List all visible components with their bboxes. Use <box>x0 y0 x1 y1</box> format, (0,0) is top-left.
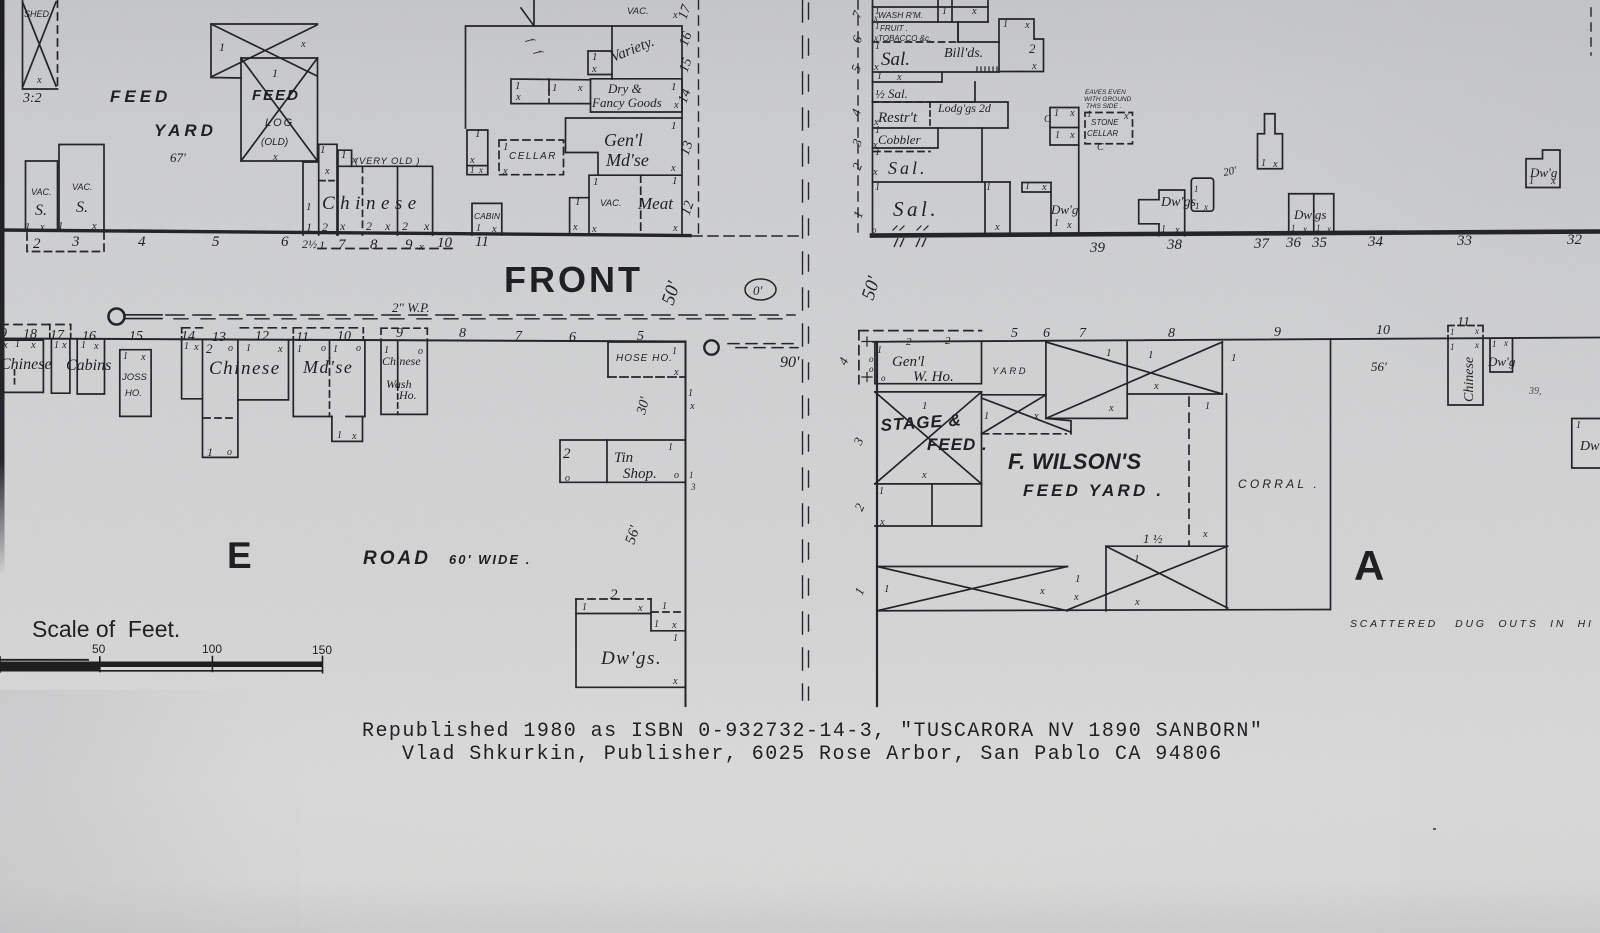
svg-text:x: x <box>515 92 521 103</box>
svg-text:1: 1 <box>688 388 693 399</box>
svg-text:37: 37 <box>1253 236 1271 252</box>
svg-text:SHED: SHED <box>24 9 50 19</box>
svg-text:x: x <box>2 340 8 351</box>
svg-text:HO.: HO. <box>125 388 142 399</box>
svg-text:1: 1 <box>1134 553 1140 565</box>
svg-text:1: 1 <box>672 346 677 357</box>
svg-text:1: 1 <box>470 165 475 175</box>
svg-text:1: 1 <box>15 339 20 350</box>
svg-text:HOSE HO.: HOSE HO. <box>616 353 673 364</box>
svg-text:1: 1 <box>942 6 947 17</box>
svg-text:x: x <box>1550 176 1556 187</box>
svg-text:1: 1 <box>219 40 225 54</box>
svg-text:o: o <box>872 225 877 235</box>
svg-text:1: 1 <box>662 601 667 612</box>
svg-text:x: x <box>93 341 99 352</box>
svg-text:SCATTERED DUG OUTS IN HI: SCATTERED DUG OUTS IN HI <box>1350 618 1594 630</box>
svg-text:ROAD: ROAD <box>363 548 431 569</box>
svg-text:x: x <box>689 401 695 412</box>
svg-text:x: x <box>30 340 36 351</box>
svg-text:1: 1 <box>672 175 678 187</box>
svg-text:1: 1 <box>552 82 558 94</box>
svg-text:FEED .: FEED . <box>927 435 988 454</box>
svg-text:Chinese: Chinese <box>209 358 281 379</box>
svg-text:5: 5 <box>212 234 220 250</box>
svg-text:1: 1 <box>877 71 882 82</box>
svg-text:1: 1 <box>476 223 481 234</box>
svg-text:9: 9 <box>1274 325 1281 340</box>
svg-text:9: 9 <box>0 326 7 341</box>
svg-text:1: 1 <box>1492 339 1497 349</box>
svg-text:38: 38 <box>1166 237 1183 253</box>
svg-text:A: A <box>1354 542 1384 589</box>
svg-text:Dw'g: Dw'g <box>1050 202 1079 217</box>
svg-text:1: 1 <box>207 445 213 459</box>
svg-text:1: 1 <box>246 343 251 354</box>
svg-text:1: 1 <box>1075 573 1081 585</box>
svg-text:Gen'l: Gen'l <box>604 130 643 150</box>
svg-text:x: x <box>272 152 278 163</box>
svg-text:x: x <box>672 676 678 687</box>
svg-text:S.: S. <box>35 202 47 219</box>
svg-text:8: 8 <box>370 237 378 253</box>
svg-text:2½: 2½ <box>302 237 317 251</box>
svg-text:TOBACCO &c.: TOBACCO &c. <box>878 34 931 43</box>
svg-text:x: x <box>872 167 878 178</box>
svg-text:x: x <box>670 163 676 174</box>
svg-text:x: x <box>1024 20 1030 31</box>
svg-text:1: 1 <box>984 411 989 422</box>
svg-text:1: 1 <box>671 120 677 132</box>
svg-text:1: 1 <box>1161 224 1166 235</box>
svg-text:1: 1 <box>875 41 880 52</box>
svg-text:x: x <box>1039 586 1045 597</box>
svg-text:o: o <box>418 346 423 357</box>
svg-text:FEED YARD .: FEED YARD . <box>1023 481 1164 500</box>
svg-text:34: 34 <box>1367 234 1384 250</box>
svg-text:x: x <box>1272 159 1278 170</box>
svg-text:F. WILSON'S: F. WILSON'S <box>1008 449 1141 474</box>
svg-text:6: 6 <box>1043 326 1050 341</box>
svg-text:Tin: Tin <box>614 450 633 466</box>
svg-text:60' WIDE .: 60' WIDE . <box>449 552 531 567</box>
svg-text:3: 3 <box>71 234 80 250</box>
svg-text:13: 13 <box>212 330 226 345</box>
svg-text:x: x <box>61 340 67 351</box>
svg-text:o: o <box>356 343 361 354</box>
svg-text:1: 1 <box>875 147 880 158</box>
svg-text:x: x <box>637 603 643 614</box>
svg-text:x: x <box>572 222 578 233</box>
svg-text:Meat: Meat <box>637 194 674 213</box>
svg-text:x: x <box>1033 411 1039 422</box>
svg-text:1: 1 <box>1003 19 1008 30</box>
svg-text:STONE: STONE <box>1091 118 1119 127</box>
svg-text:x: x <box>140 352 146 363</box>
svg-text:11: 11 <box>296 330 309 345</box>
svg-text:FRONT: FRONT <box>504 259 643 300</box>
svg-text:1: 1 <box>503 141 509 153</box>
svg-text:1: 1 <box>475 128 481 140</box>
svg-text:VAC.: VAC. <box>627 6 649 17</box>
svg-text:x: x <box>36 75 42 86</box>
svg-text:39,: 39, <box>1528 386 1542 397</box>
svg-text:6: 6 <box>281 234 289 250</box>
svg-text:15: 15 <box>129 329 143 344</box>
svg-text:CELLAR: CELLAR <box>509 151 557 162</box>
svg-text:11: 11 <box>475 234 489 250</box>
svg-text:o: o <box>674 470 679 481</box>
svg-text:1: 1 <box>582 602 587 613</box>
svg-text:x: x <box>1134 597 1140 608</box>
svg-text:x: x <box>193 342 199 353</box>
svg-text:x: x <box>1108 403 1114 414</box>
svg-text:CELLAR: CELLAR <box>1087 129 1118 138</box>
svg-text:1: 1 <box>1106 347 1112 359</box>
svg-text:1: 1 <box>1450 327 1455 337</box>
svg-text:Bill'ds.: Bill'ds. <box>944 46 983 61</box>
svg-text:2: 2 <box>906 336 912 348</box>
svg-text:10: 10 <box>1376 323 1390 338</box>
svg-text:x: x <box>921 470 927 481</box>
svg-text:7: 7 <box>515 329 523 344</box>
svg-text:8: 8 <box>459 326 466 341</box>
svg-text:x: x <box>672 10 678 21</box>
svg-text:x: x <box>384 219 391 233</box>
svg-text:x: x <box>1474 340 1479 350</box>
svg-text:1: 1 <box>875 21 880 31</box>
svg-text:Sal.: Sal. <box>888 158 928 178</box>
svg-text:o: o <box>881 373 886 383</box>
svg-text:C: C <box>1044 114 1051 125</box>
svg-text:36: 36 <box>1285 235 1302 251</box>
svg-text:1: 1 <box>879 486 884 497</box>
svg-text:35: 35 <box>1311 235 1328 251</box>
svg-text:1: 1 <box>575 196 581 208</box>
svg-text:1: 1 <box>1261 158 1266 169</box>
svg-text:100: 100 <box>202 642 222 656</box>
svg-text:Chinese: Chinese <box>0 356 52 373</box>
svg-text:1: 1 <box>54 340 59 351</box>
svg-text:2: 2 <box>945 335 951 347</box>
svg-text:1: 1 <box>272 66 278 80</box>
svg-text:x: x <box>277 344 283 355</box>
svg-text:x: x <box>1041 182 1047 193</box>
svg-text:2" W.P.: 2" W.P. <box>392 300 430 315</box>
svg-text:1: 1 <box>1054 218 1059 229</box>
svg-text:Scale of Feet.: Scale of Feet. <box>32 616 180 642</box>
svg-text:50: 50 <box>92 642 106 656</box>
svg-text:YARD: YARD <box>154 121 217 140</box>
svg-text:x: x <box>577 83 583 94</box>
svg-text:9: 9 <box>405 237 413 253</box>
svg-text:x: x <box>671 620 677 631</box>
svg-text:x: x <box>300 39 306 50</box>
svg-text:1: 1 <box>875 182 880 193</box>
svg-text:1: 1 <box>123 351 128 362</box>
svg-text:(VERY OLD ): (VERY OLD ) <box>355 156 420 167</box>
svg-text:Dw'gs.: Dw'gs. <box>600 648 662 669</box>
svg-text:Lodg'gs 2d: Lodg'gs 2d <box>937 101 992 115</box>
svg-text:WITH GROUND: WITH GROUND <box>1084 96 1132 103</box>
svg-text:x: x <box>351 431 357 442</box>
svg-text:FEED: FEED <box>110 87 171 106</box>
svg-text:1: 1 <box>1576 420 1581 431</box>
svg-text:1: 1 <box>384 345 389 356</box>
svg-text:5: 5 <box>637 329 644 344</box>
svg-text:x: x <box>1073 592 1079 603</box>
svg-text:x: x <box>1203 202 1208 212</box>
svg-text:1: 1 <box>668 442 673 453</box>
svg-text:1: 1 <box>1450 342 1455 352</box>
svg-text:x: x <box>1069 130 1075 141</box>
svg-text:1: 1 <box>654 619 659 630</box>
svg-text:x: x <box>1202 529 1208 540</box>
svg-text:x: x <box>1066 220 1072 231</box>
svg-text:x: x <box>994 222 1000 233</box>
svg-text:VAC.: VAC. <box>600 198 622 209</box>
svg-text:x: x <box>1474 326 1479 336</box>
svg-text:x: x <box>478 165 483 175</box>
svg-text:VAC.: VAC. <box>31 187 52 197</box>
svg-text:Dw'gs: Dw'gs <box>1293 207 1326 222</box>
svg-text:1: 1 <box>671 81 677 93</box>
svg-text:o: o <box>869 354 874 364</box>
svg-text:2: 2 <box>322 220 328 234</box>
svg-text:10: 10 <box>337 329 351 344</box>
svg-text:CABIN: CABIN <box>474 211 501 221</box>
svg-text:x: x <box>591 224 597 235</box>
svg-text:Fancy Goods: Fancy Goods <box>591 95 662 110</box>
svg-text:x: x <box>351 155 357 166</box>
svg-text:x: x <box>418 241 424 253</box>
svg-text:Restr't: Restr't <box>877 110 918 126</box>
svg-text:W. Ho.: W. Ho. <box>913 369 954 385</box>
svg-text:1: 1 <box>184 341 189 352</box>
svg-text:2: 2 <box>563 446 571 462</box>
svg-text:1: 1 <box>25 222 30 233</box>
svg-text:Shop.: Shop. <box>623 466 657 482</box>
svg-text:S.: S. <box>76 199 88 216</box>
svg-text:1: 1 <box>1055 130 1060 141</box>
svg-text:Cabins: Cabins <box>66 357 111 374</box>
svg-text:1: 1 <box>673 633 678 644</box>
svg-text:1: 1 <box>333 344 338 355</box>
svg-text:x: x <box>491 224 497 235</box>
svg-text:9: 9 <box>396 326 403 341</box>
svg-text:2: 2 <box>1029 41 1036 56</box>
svg-text:Sal.: Sal. <box>893 197 939 221</box>
svg-text:33: 33 <box>1456 233 1472 249</box>
svg-text:1: 1 <box>58 221 63 232</box>
svg-text:1: 1 <box>1025 181 1030 192</box>
svg-text:1 ½: 1 ½ <box>1143 531 1163 546</box>
svg-text:1: 1 <box>922 400 928 412</box>
svg-text:1: 1 <box>1316 223 1321 233</box>
svg-text:Dry &: Dry & <box>607 81 642 96</box>
svg-text:x: x <box>39 222 45 233</box>
svg-text:1: 1 <box>1087 109 1092 119</box>
svg-text:6: 6 <box>569 330 576 345</box>
svg-text:2: 2 <box>402 219 408 233</box>
svg-text:½ Sal.: ½ Sal. <box>875 86 908 101</box>
svg-text:150: 150 <box>312 643 332 657</box>
svg-text:1: 1 <box>1054 108 1059 119</box>
svg-text:EAVES EVEN: EAVES EVEN <box>1085 89 1126 96</box>
svg-text:1: 1 <box>884 583 890 595</box>
svg-text:1: 1 <box>1231 352 1237 364</box>
svg-text:x: x <box>324 166 330 177</box>
svg-text:2: 2 <box>206 341 213 356</box>
svg-text:VAC.: VAC. <box>72 182 93 192</box>
svg-text:1: 1 <box>337 430 342 441</box>
svg-text:Dw'g: Dw'g <box>1487 354 1516 369</box>
svg-text:1: 1 <box>306 201 312 213</box>
svg-text:1: 1 <box>593 176 599 188</box>
svg-text:C: C <box>1097 142 1104 153</box>
svg-text:1: 1 <box>319 238 325 252</box>
svg-text:1: 1 <box>515 80 521 92</box>
svg-text:(OLD): (OLD) <box>261 137 288 148</box>
svg-text:1: 1 <box>306 220 312 234</box>
svg-text:Chinese: Chinese <box>382 354 421 368</box>
svg-text:x: x <box>339 219 346 233</box>
svg-text:E: E <box>227 535 252 576</box>
svg-text:FRUIT .: FRUIT . <box>880 24 908 33</box>
svg-text:Cobbler: Cobbler <box>878 132 922 147</box>
svg-text:11: 11 <box>1457 315 1470 330</box>
svg-text:Vlad Shkurkin, Publisher, 6025: Vlad Shkurkin, Publisher, 6025 Rose Arbo… <box>402 743 1223 766</box>
svg-text:WASH R'M.: WASH R'M. <box>878 10 923 20</box>
svg-text:x: x <box>1031 61 1037 72</box>
svg-text:8: 8 <box>1168 326 1175 341</box>
svg-text:Gen'l: Gen'l <box>892 354 924 370</box>
svg-text:0': 0' <box>753 283 763 298</box>
svg-text:o: o <box>565 473 570 484</box>
svg-text:5: 5 <box>1011 326 1018 341</box>
svg-text:4: 4 <box>138 234 146 250</box>
svg-text:12: 12 <box>255 329 269 344</box>
svg-text:Sal.: Sal. <box>881 49 910 70</box>
svg-text:x: x <box>1302 224 1307 234</box>
svg-text:Chinese: Chinese <box>322 193 422 214</box>
svg-text:x: x <box>1326 224 1331 234</box>
svg-text:Ho.: Ho. <box>398 388 417 402</box>
svg-text:LOG: LOG <box>265 117 294 129</box>
svg-text:x: x <box>423 219 430 233</box>
svg-text:x: x <box>879 517 885 528</box>
svg-text:x: x <box>672 223 678 234</box>
svg-text:o: o <box>321 343 326 354</box>
svg-text:CORRAL .: CORRAL . <box>1238 477 1320 491</box>
svg-text:1: 1 <box>341 149 347 161</box>
svg-text:FEED: FEED <box>252 87 300 104</box>
svg-text:3: 3 <box>690 482 696 492</box>
svg-text:1: 1 <box>1195 201 1200 211</box>
svg-text:x: x <box>1123 111 1129 122</box>
svg-text:Md'se: Md'se <box>302 357 353 377</box>
svg-text:3:2: 3:2 <box>22 91 42 106</box>
svg-text:1: 1 <box>877 345 882 356</box>
svg-text:1: 1 <box>1205 401 1210 412</box>
svg-text:67': 67' <box>170 150 186 165</box>
svg-text:x: x <box>1174 225 1180 236</box>
svg-text:39: 39 <box>1089 240 1106 256</box>
svg-text:x: x <box>502 166 508 177</box>
svg-text:1: 1 <box>1148 349 1154 361</box>
svg-text:1: 1 <box>592 51 598 63</box>
svg-text:x: x <box>591 64 597 75</box>
svg-text:1: 1 <box>81 340 86 351</box>
svg-text:o: o <box>228 343 233 354</box>
svg-text:2: 2 <box>33 236 41 252</box>
svg-text:x: x <box>673 367 679 378</box>
svg-text:90': 90' <box>780 354 800 371</box>
svg-text:2: 2 <box>366 219 372 233</box>
svg-text:32: 32 <box>1566 232 1583 248</box>
svg-text:JOSS: JOSS <box>121 372 147 383</box>
svg-text:2: 2 <box>610 587 618 603</box>
svg-text:o: o <box>869 364 874 374</box>
svg-text:1: 1 <box>297 344 302 355</box>
svg-text:1: 1 <box>1194 184 1199 194</box>
svg-text:1: 1 <box>1529 176 1534 187</box>
svg-text:1: 1 <box>689 470 694 480</box>
svg-text:1: 1 <box>986 182 991 193</box>
svg-text:x: x <box>1069 108 1075 119</box>
svg-text:x: x <box>673 100 679 111</box>
svg-text:x: x <box>971 6 977 17</box>
svg-text:1: 1 <box>875 125 880 136</box>
svg-text:x: x <box>1503 338 1508 348</box>
svg-text:x: x <box>896 72 902 83</box>
svg-text:Chinese: Chinese <box>1462 357 1477 402</box>
svg-text:Republished 1980 as ISBN 0-932: Republished 1980 as ISBN 0-932732-14-3, … <box>362 720 1263 743</box>
svg-text:56': 56' <box>1371 359 1387 374</box>
svg-text:1: 1 <box>320 144 326 156</box>
svg-text:o: o <box>227 447 232 458</box>
svg-text:YARD: YARD <box>992 366 1028 377</box>
svg-text:1: 1 <box>1291 223 1296 233</box>
svg-text:Dw: Dw <box>1579 439 1600 454</box>
svg-text:x: x <box>1153 381 1159 392</box>
svg-text:Md'se: Md'se <box>605 150 649 170</box>
svg-text:7: 7 <box>1079 326 1087 341</box>
svg-text:Dw'gs: Dw'gs <box>1160 195 1196 210</box>
svg-text:10: 10 <box>437 235 453 251</box>
svg-text:x: x <box>91 221 97 232</box>
